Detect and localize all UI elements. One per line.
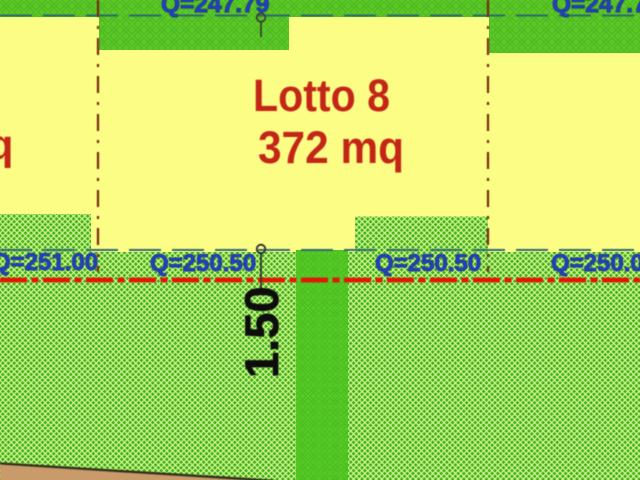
svg-text:Q=251.00: Q=251.00 bbox=[0, 249, 98, 276]
svg-text:372 mq: 372 mq bbox=[258, 122, 404, 173]
svg-text:Q=250.50: Q=250.50 bbox=[150, 250, 256, 277]
svg-text:Lotto 8: Lotto 8 bbox=[253, 70, 390, 121]
svg-text:Q=250.00: Q=250.00 bbox=[551, 250, 640, 277]
svg-text:Q=247.79: Q=247.79 bbox=[552, 0, 640, 18]
svg-text:1.50: 1.50 bbox=[235, 287, 288, 378]
svg-text:mq: mq bbox=[0, 121, 14, 169]
svg-text:Q=247.79: Q=247.79 bbox=[161, 0, 269, 18]
svg-text:Q=250.50: Q=250.50 bbox=[375, 250, 481, 277]
